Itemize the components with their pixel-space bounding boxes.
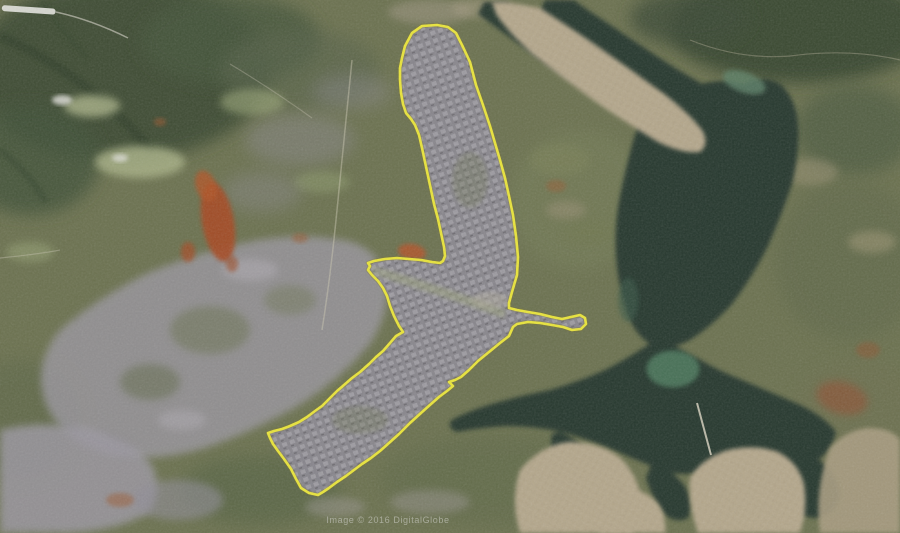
grain-overlay — [0, 0, 900, 533]
imagery-watermark: Image © 2016 DigitalGlobe — [326, 515, 449, 525]
satellite-map[interactable]: Image © 2016 DigitalGlobe — [0, 0, 900, 533]
map-canvas: Image © 2016 DigitalGlobe — [0, 0, 900, 533]
